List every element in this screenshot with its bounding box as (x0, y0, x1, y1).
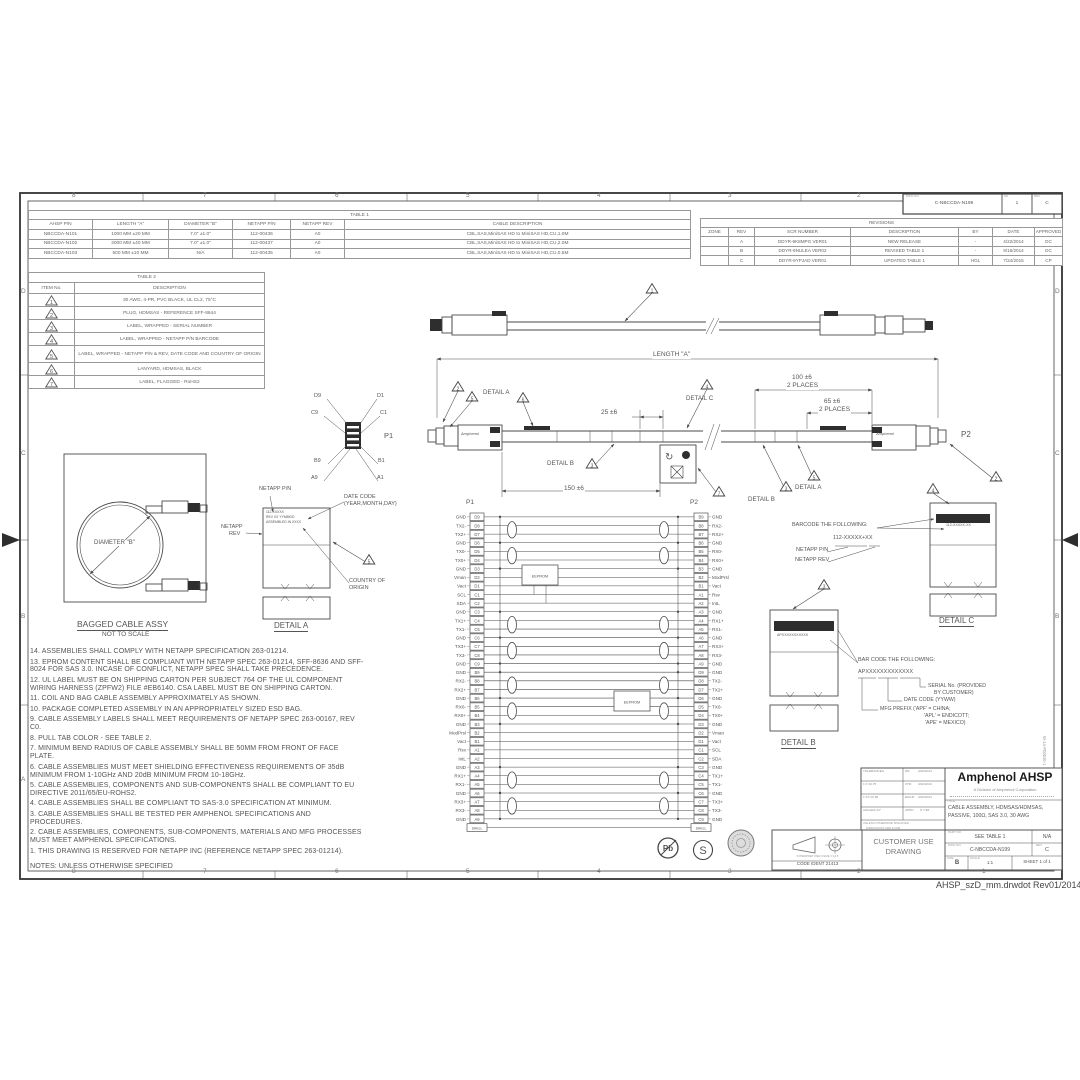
face-d9: D9 (314, 394, 321, 400)
revisions-table-cell: - (959, 237, 993, 247)
zone-left-B: B (21, 614, 25, 621)
pin-number: D1 (698, 739, 704, 744)
table-1-header: NETAPP P/N (233, 220, 291, 230)
table-2-cell: 7 (29, 376, 75, 389)
table-1-cell: 7.0" ±1.0" (169, 230, 233, 240)
face-b9: B9 (314, 459, 321, 465)
pin-number: B7 (698, 532, 704, 537)
pin-number: D9 (698, 670, 704, 675)
table-1-cell: NBCCDA-N101 (29, 230, 93, 240)
p2-signal: IntL (712, 601, 720, 606)
revisions-table-cell (701, 256, 729, 266)
p2-signal: RX0- (712, 549, 723, 554)
dwg-no-value: C-NBCCDA-N199 (950, 848, 1030, 853)
p2-signal: TX0- (712, 705, 722, 710)
zone-top-2: 2 (857, 193, 861, 200)
pin-number: D3 (474, 566, 480, 571)
pin-number: C1 (474, 592, 480, 597)
tol-title: TOLERANCES (863, 770, 884, 773)
table-2-cell: LABEL, WRAPPED - NETAPP P/N & REV, DATE … (75, 346, 265, 363)
revisions-table-cell: 7/24/2015 (993, 256, 1035, 266)
flag-leader (950, 444, 996, 481)
twisted-pair-icon (508, 772, 517, 788)
twisted-pair-icon (660, 522, 669, 538)
table-1-cell: 112-00436 (233, 230, 291, 240)
zone-bottom-2: 2 (857, 869, 861, 876)
zone-bottom-6: 6 (335, 869, 339, 876)
upper-cable-view (430, 311, 933, 335)
pin-number: D6 (474, 541, 480, 546)
right-centering-arrow (1062, 533, 1078, 547)
twisted-pair-icon (660, 642, 669, 658)
company-name: Amphenol AHSP (949, 771, 1061, 784)
zone-bottom-8: 8 (72, 869, 76, 876)
p2-signal: GND (712, 566, 723, 571)
twisted-pair-icon (660, 617, 669, 633)
table-1-cell: A0 (291, 230, 345, 240)
drawing-title-2: PASSIVE, 100Ω, SAS 3.0, 30 AWG (948, 814, 1029, 819)
left-centering-arrow (2, 533, 20, 547)
pin-number: B8 (698, 523, 704, 528)
p2-main-label: P2 (961, 431, 971, 439)
bagged-cable-view (64, 454, 207, 602)
note-8: 8. PULL TAB COLOR - SEE TABLE 2. (30, 735, 364, 743)
zone-bottom-7: 7 (203, 869, 207, 876)
p2-signal: RX3- (712, 653, 723, 658)
p1-signal: Vact (457, 739, 467, 744)
revisions-table-cell: A (729, 237, 755, 247)
p2-signal: GND (712, 791, 723, 796)
item-flag-number: 3 (785, 486, 788, 492)
revisions-table: REVISIONSZONEREVSCR NUMBERDESCRIPTIONBYD… (700, 218, 1063, 266)
gnd-junction (499, 671, 501, 673)
gnd-junction (677, 516, 679, 518)
table-1-cell: 112-00435 (233, 249, 291, 259)
pin-number: C1 (698, 748, 704, 753)
detail-a-caption: DETAIL A (274, 622, 308, 632)
item-flag-number: 4 (706, 384, 709, 390)
flag-leader (450, 401, 472, 427)
twisted-pair-icon (660, 547, 669, 563)
pin-number: A4 (474, 774, 480, 779)
dim-150: 150 ±6 (563, 486, 585, 493)
pin-number: A1 (698, 592, 704, 597)
table-2-cell: 3 (29, 320, 75, 333)
dwg-no-label: DWG NO. (948, 844, 962, 847)
detail-b-ref-1: DETAIL B (547, 461, 574, 468)
item-flag-number: 2 (995, 476, 998, 482)
barcode-c-callout: BARCODE THE FOLLOWING: (792, 523, 868, 529)
table-1-title: TABLE 1 (29, 211, 691, 220)
p2-signal: TX2- (712, 679, 722, 684)
table-2-cell: 6 (29, 363, 75, 376)
svg-text:5: 5 (50, 354, 53, 360)
tol-dr: DR (905, 770, 909, 773)
revisions-table-cell: DDYR-9NULEA VER02 (755, 246, 851, 256)
tol-engr-date: 4/22/2014 (918, 796, 932, 799)
note-9: 9. CABLE ASSEMBLY LABELS SHALL MEET REQU… (30, 716, 364, 732)
revisions-table-header: REV (729, 227, 755, 237)
twisted-pair-icon (508, 642, 517, 658)
p1-signal: RX1+ (454, 774, 466, 779)
table-2-cell: 30 AWG, 4-PR, PVC BLACK, UL CL2, 75°C (75, 294, 265, 307)
revisions-table-header: DATE (993, 227, 1035, 237)
detail-a-ref-2: DETAIL A (795, 485, 821, 492)
p1-signal: TX2- (456, 523, 466, 528)
corner-sh-value: 1 (1002, 201, 1032, 206)
revisions-table-cell: CP (1035, 256, 1063, 266)
pin-number: A6 (474, 791, 480, 796)
pin-number: D8 (474, 523, 480, 528)
twisted-pair-icon (508, 522, 517, 538)
svg-text:6: 6 (50, 369, 53, 375)
table-2-cell: 1 (29, 294, 75, 307)
engineering-drawing-sheet: ↻ (0, 0, 1080, 1080)
pin-number: D3 (698, 722, 704, 727)
pin-number: B3 (698, 566, 704, 571)
revisions-table-header: SCR NUMBER (755, 227, 851, 237)
p1-shell: SHELL (472, 826, 483, 830)
zone-top-7: 7 (203, 193, 207, 200)
pin-number: B6 (698, 541, 704, 546)
pin-number: C3 (698, 765, 704, 770)
p1-signal: TX3+ (455, 644, 466, 649)
pin-number: C7 (698, 799, 704, 804)
p1-signal: RX0+ (454, 713, 466, 718)
detail-b-caption: DETAIL B (781, 739, 816, 749)
flag-leader (443, 391, 458, 422)
table-1-cell: N/A (169, 249, 233, 259)
revisions-table-cell: DDYR-9K8MPG VER01 (755, 237, 851, 247)
table-2-header: ITEM No. (29, 283, 75, 294)
gnd-junction (499, 792, 501, 794)
pin-number: A5 (698, 627, 704, 632)
pin-number: B1 (474, 739, 480, 744)
pin-number: A2 (698, 601, 704, 606)
gnd-junction (677, 636, 679, 638)
note-4: 4. CABLE ASSEMBLIES SHALL BE COMPLIANT T… (30, 800, 364, 808)
table-1-cell: NBCCDA-N102 (29, 239, 93, 249)
item-flag-number: 5 (471, 396, 474, 402)
table-1-cell: CBL,SAS,MiniSAS HD to MiniSAS HD,CU,2.0M (345, 239, 691, 249)
dim-25: 25 ±6 (601, 410, 617, 417)
table-1-cell: NBCCDA-N103 (29, 249, 93, 259)
revisions-table-cell: B (729, 246, 755, 256)
twisted-pair-icon (508, 617, 517, 633)
p1-signal: GND (456, 670, 467, 675)
tol-note-1: UNLESS OTHERWISE SPECIFIED (863, 822, 909, 825)
twisted-pair-icon (660, 703, 669, 719)
pin-number: A8 (474, 808, 480, 813)
tol-chk-date: 4/22/2014 (918, 783, 932, 786)
table-2: TABLE 2ITEM No.DESCRIPTION130 AWG, 4-PR,… (28, 272, 265, 389)
label-b-micro: APXXXXXXXXXXX (777, 634, 808, 638)
pin-number: A7 (474, 799, 480, 804)
pin-number: C9 (474, 661, 480, 666)
part-no-label: PART NO. (948, 831, 962, 834)
label-a-line3: ASSEMBLED IN XXXX (266, 521, 301, 525)
revisions-table-header: DESCRIPTION (851, 227, 959, 237)
note-11: 11. COIL AND BAG CABLE ASSEMBLY APPROXIM… (30, 695, 364, 703)
tol-appd: APPD (905, 809, 913, 812)
revisions-table-cell: 4/22/2014 (993, 237, 1035, 247)
table-1-cell: 7.0" ±1.0" (169, 239, 233, 249)
pin-number: D7 (698, 687, 704, 692)
company-fine-print (950, 796, 1054, 797)
code-ident: CODE IDENT 21413 (773, 862, 862, 867)
item-flag-number: 2 (457, 386, 460, 392)
p2-signal: TX0+ (712, 713, 723, 718)
datecode-b-callout: DATE CODE (YYWW) (904, 698, 956, 703)
twisted-pair-icon (508, 798, 517, 814)
p2-signal: Vman (712, 730, 724, 735)
s-mark-stamp-icon: S (694, 841, 713, 860)
table-2-title: TABLE 2 (29, 273, 265, 283)
p1-signal: ModPrsl (449, 730, 466, 735)
table-2-cell: PLUG, HDMSAS - REFERENCE SFF-8644 (75, 307, 265, 320)
date-code-callout-1: DATE CODE (344, 495, 376, 501)
p1-signal: Vact (457, 584, 467, 589)
revisions-table-header: APPROVED (1035, 227, 1063, 237)
p2-signal: SDA (712, 756, 722, 761)
p1-signal: GND (456, 610, 467, 615)
pin-number: B2 (474, 730, 480, 735)
revisions-table-cell: 9/16/2014 (993, 246, 1035, 256)
rohs-seal-icon (728, 830, 754, 856)
p2-signal: Vact (712, 739, 722, 744)
pin-number: A3 (474, 765, 480, 770)
mfg-prefix-3: 'APE' = MEXICO) (925, 721, 965, 726)
p2-signal: TX3- (712, 808, 722, 813)
netapp-rev-callout-2: REV (229, 532, 240, 538)
p2-signal: GND (712, 817, 723, 822)
customer-use-2: DRAWING (862, 848, 945, 856)
p2-signal: GND (712, 696, 723, 701)
gnd-junction (499, 662, 501, 664)
note-10: 10. PACKAGE COMPLETED ASSEMBLY IN AN APP… (30, 706, 364, 714)
dwg-rev-label: REV (1036, 844, 1042, 847)
item-flag-number: 3 (591, 463, 594, 469)
zone-right-D: D (1055, 289, 1060, 296)
gnd-junction (677, 662, 679, 664)
diameter-b: DIAMETER "B" (93, 540, 136, 546)
item-flag-number: 1 (651, 288, 654, 294)
gnd-junction (677, 766, 679, 768)
pin-number: D5 (698, 705, 704, 710)
p1-signal: GND (456, 541, 467, 546)
serial-callout-1: SERIAL No. (PROVIDED (928, 684, 986, 689)
face-b1: B1 (378, 459, 385, 465)
pin-number: B1 (698, 584, 704, 589)
p2-signal: GND (712, 670, 723, 675)
gnd-junction (499, 567, 501, 569)
p1-signal: RX2+ (454, 687, 466, 692)
face-c9: C9 (311, 411, 318, 417)
p2-signal: RX2- (712, 523, 723, 528)
table-1-cell: CBL,SAS,MiniSAS HD to MiniSAS HD,CU,1.0M (345, 230, 691, 240)
revisions-table-cell: UPDATED TABLE 1 (851, 256, 959, 266)
pin-number: C4 (698, 774, 704, 779)
pin-number: C8 (698, 808, 704, 813)
flag-leader (933, 493, 949, 504)
pin-number: A2 (474, 756, 480, 761)
detail-c-caption: DETAIL C (939, 617, 974, 627)
detail-c-ref: DETAIL C (686, 396, 713, 403)
note-5: 5. CABLE ASSEMBLIES, COMPONENTS AND SUB-… (30, 782, 364, 798)
pin-number: B5 (698, 549, 704, 554)
p1-signal: GND (456, 636, 467, 641)
table-2-header: DESCRIPTION (75, 283, 265, 294)
table-1-cell: 1000 MM ±20 MM (93, 230, 169, 240)
tol-chk: CHK (905, 783, 912, 786)
pin-number: B2 (698, 575, 704, 580)
p1-signal: SDA (457, 601, 467, 606)
detail-a-drawing (246, 496, 349, 619)
pin-number: D2 (474, 575, 480, 580)
pin-number: A8 (698, 653, 704, 658)
svg-text:1: 1 (50, 300, 53, 306)
sheet-file-note: AHSP_szD_mm.drwdot Rev01/201409 (936, 881, 1080, 890)
corner-dwg-value: C-NBCCDA-N199 (906, 201, 1002, 206)
gnd-junction (677, 542, 679, 544)
revisions-table-cell: - (959, 246, 993, 256)
stamp-dot-icon (682, 451, 690, 459)
gnd-junction (499, 542, 501, 544)
p2-signal: GND (712, 765, 723, 770)
item-flag-number: 5 (368, 559, 371, 565)
barcode-c-pn: NETAPP P/N (796, 548, 828, 554)
detail-b-ref-2: DETAIL B (748, 497, 775, 504)
zone-left-A: A (21, 777, 25, 784)
p2-signal: Rsv (712, 592, 721, 597)
pin-number: B9 (698, 515, 704, 520)
zone-right-C: C (1055, 451, 1060, 458)
notes-footer: NOTES: UNLESS OTHERWISE SPECIFIED (30, 861, 364, 870)
note-2: 2. CABLE ASSEMBLIES, COMPONENTS, SUB-COM… (30, 829, 364, 845)
twisted-pair-icon (508, 677, 517, 693)
table-1-header: CABLE DESCRIPTION (345, 220, 691, 230)
twisted-pair-icon (508, 703, 517, 719)
table-1-cell: A0 (291, 249, 345, 259)
mfg-prefix-2: 'APL' = ENDICOTT; (924, 714, 969, 719)
pin-number: D4 (698, 713, 704, 718)
size-value: B (947, 860, 967, 866)
zone-right-B: B (1055, 614, 1059, 621)
mfg-prefix-1: MFG PREFIX ('APF' = CHINA; (880, 707, 950, 712)
gnd-junction (677, 567, 679, 569)
revisions-table-cell (701, 246, 729, 256)
p1-signal: GND (456, 696, 467, 701)
svg-text:3: 3 (50, 326, 53, 332)
flag-leader (333, 542, 369, 564)
p2-signal: RX0+ (712, 558, 724, 563)
notes-list: 14. ASSEMBLIES SHALL COMPLY WITH NETAPP … (30, 648, 364, 870)
label-c-micro: 112-XXXXX-XX (946, 524, 971, 528)
length-a-label: LENGTH "A" (652, 352, 691, 359)
p2-signal: TX3+ (712, 799, 723, 804)
item-flag-number: 5 (813, 475, 816, 481)
tol-appd-val: S.YJM (920, 809, 929, 812)
p1-signal: IntL (458, 756, 466, 761)
zone-top-3: 3 (728, 193, 732, 200)
pin-number: D4 (474, 558, 480, 563)
pin-number: D9 (474, 515, 480, 520)
p2-signal: TX1+ (712, 774, 723, 779)
table-2-cell: LABEL, WRAPPED - NETAPP P/N BARCODE (75, 333, 265, 346)
item-flag-number: 6 (522, 397, 525, 403)
revisions-table-cell (701, 237, 729, 247)
dim-100: 100 ±6 (791, 375, 813, 382)
pin-number: C7 (474, 644, 480, 649)
p1-signal: SCL (457, 592, 466, 597)
table-2-cell: 5 (29, 346, 75, 363)
zone-top-5: 5 (466, 193, 470, 200)
table-2-cell: 4 (29, 333, 75, 346)
item-flag-number: 7 (718, 491, 721, 497)
pin-number: C5 (698, 782, 704, 787)
gnd-junction (677, 792, 679, 794)
p2-signal: GND (712, 661, 723, 666)
p2-signal: GND (712, 541, 723, 546)
p1-signal: RX2- (456, 679, 467, 684)
revisions-table-cell: NEW RELEASE (851, 237, 959, 247)
dim-100-places: 2 PLACES (786, 383, 819, 390)
company-division: A Division of Amphenol Corporation (949, 788, 1061, 792)
brand-left: Amphenol (461, 432, 479, 436)
interpret-note: INTERPRET PER ASME Y14.5 (773, 855, 862, 858)
gnd-junction (499, 766, 501, 768)
note-14: 14. ASSEMBLIES SHALL COMPLY WITH NETAPP … (30, 648, 364, 656)
gnd-junction (499, 818, 501, 820)
netapp-rev-callout-1: NETAPP (221, 525, 243, 531)
p2-signal: TX2+ (712, 687, 723, 692)
pin-number: A9 (698, 661, 704, 666)
tol-dr-date: 4/22/2014 (918, 770, 932, 773)
revisions-table-cell: DDYR-9YPJAD VER01 (755, 256, 851, 266)
drawing-geometry-layer: ↻ (0, 0, 1080, 1080)
dim-65-places: 2 PLACES (818, 407, 851, 414)
pin-number: D5 (474, 549, 480, 554)
detail-c-drawing (827, 503, 996, 616)
twisted-pair-icon (660, 772, 669, 788)
table-1-header: AHSP P/N (29, 220, 93, 230)
face-p1: P1 (384, 432, 393, 440)
zone-top-6: 6 (335, 193, 339, 200)
pin-number: B9 (474, 670, 480, 675)
svg-text:S: S (699, 845, 706, 857)
pin-number: C8 (474, 653, 480, 658)
flag-leader (625, 293, 652, 321)
part-rev-value: N/A (1034, 835, 1060, 840)
side-code: W-14-P00035-1 (1042, 736, 1046, 765)
pin-number: C6 (698, 791, 704, 796)
gnd-junction (677, 671, 679, 673)
tol-x: ±.X ±0.75 (863, 783, 876, 786)
revisions-table-cell: DC (1035, 237, 1063, 247)
sheet-value: SHEET 1 of 1 (1012, 860, 1062, 865)
pin-number: B7 (474, 687, 480, 692)
bagged-caption: BAGGED CABLE ASSY (77, 620, 168, 631)
p1-signal: TX1+ (455, 618, 466, 623)
p2-signal: SCL (712, 748, 721, 753)
revisions-table-cell: C (729, 256, 755, 266)
revisions-table-header: ZONE (701, 227, 729, 237)
gnd-junction (499, 516, 501, 518)
twisted-pair-icon (660, 798, 669, 814)
revisions-table-cell: REVISED TABLE 1 (851, 246, 959, 256)
table-1-header: NETAPP REV (291, 220, 345, 230)
barcode-c-value: 112-XXXXX+XX (833, 536, 873, 542)
